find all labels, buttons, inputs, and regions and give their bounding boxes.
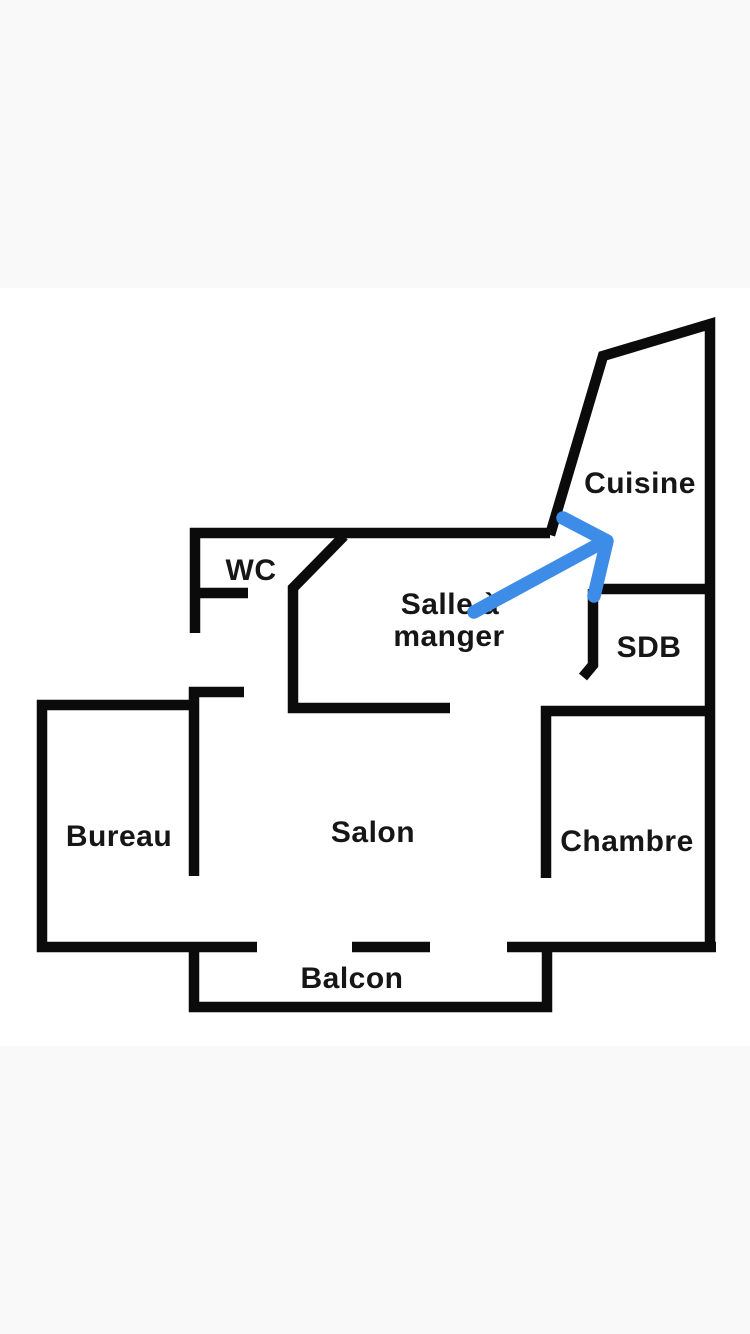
room-label-chambre: Chambre <box>560 825 694 858</box>
room-label-balcon: Balcon <box>300 962 403 995</box>
room-label-salle-a-manger-line2: manger <box>393 620 504 653</box>
room-label-cuisine: Cuisine <box>584 467 696 500</box>
floor-plan-diagram: Cuisine WC Salle à manger SDB Bureau Sal… <box>0 0 750 1334</box>
floor-plan-walls <box>42 324 716 1007</box>
wall-salon-left-and-jamb <box>194 692 244 876</box>
screenshot-root: Cuisine WC Salle à manger SDB Bureau Sal… <box>0 0 750 1334</box>
arrow-shaft <box>474 542 603 612</box>
room-label-sdb: SDB <box>617 631 682 664</box>
room-label-wc: WC <box>226 554 277 587</box>
room-label-bureau: Bureau <box>66 820 172 853</box>
room-label-salon: Salon <box>331 816 415 849</box>
